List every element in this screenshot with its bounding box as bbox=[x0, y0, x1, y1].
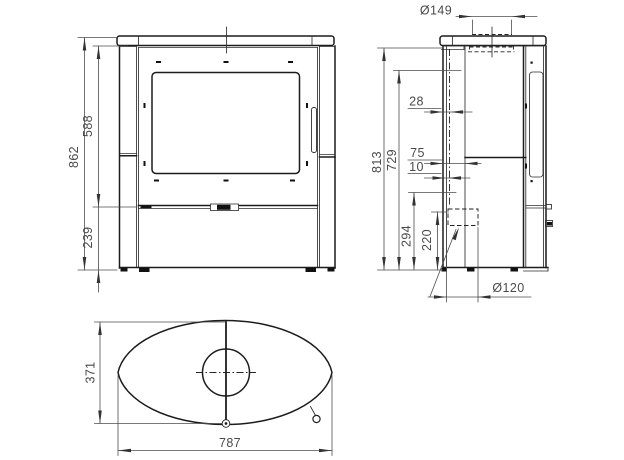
front-feet bbox=[121, 268, 335, 272]
drawing-canvas: 862 588 239 bbox=[0, 0, 624, 460]
side-view: Ø149 813 729 bbox=[370, 4, 553, 303]
dim-height-base: 239 bbox=[81, 207, 100, 292]
dim-height-upper: 588 bbox=[81, 46, 137, 207]
dim-label-729: 729 bbox=[385, 149, 399, 171]
dim-label-flue-rear: Ø120 bbox=[492, 281, 524, 295]
stove-dimension-drawing: 862 588 239 bbox=[0, 0, 624, 460]
dim-offset-28: 28 bbox=[408, 95, 472, 114]
front-registration-marks bbox=[144, 61, 309, 182]
top-view: 371 787 bbox=[84, 321, 333, 456]
dim-label-28: 28 bbox=[409, 95, 424, 109]
top-flue-collar-hidden bbox=[468, 27, 515, 57]
front-door-handle bbox=[312, 108, 317, 153]
dim-width: 787 bbox=[118, 376, 332, 456]
dim-label-75: 75 bbox=[410, 146, 425, 160]
dim-label-10: 10 bbox=[409, 160, 424, 174]
side-view-outline bbox=[440, 36, 553, 271]
dim-label-813: 813 bbox=[370, 151, 384, 173]
rear-flue-outlet-hidden bbox=[448, 209, 478, 226]
dim-label-294: 294 bbox=[400, 225, 414, 247]
side-feet bbox=[442, 268, 519, 272]
dim-label-220: 220 bbox=[420, 229, 434, 251]
front-view: 862 588 239 bbox=[67, 27, 335, 292]
dim-flue-top-diameter: Ø149 bbox=[420, 4, 537, 35]
dim-label-787: 787 bbox=[219, 436, 241, 450]
dim-label-862: 862 bbox=[67, 146, 81, 168]
dim-label-371: 371 bbox=[84, 361, 98, 383]
dim-label-239: 239 bbox=[81, 226, 95, 248]
dim-height-220: 220 bbox=[420, 212, 449, 270]
dim-label-flue-top: Ø149 bbox=[420, 4, 452, 18]
top-view-latch bbox=[222, 420, 230, 428]
front-glass-window bbox=[152, 73, 300, 174]
top-view-handle-knob bbox=[311, 407, 321, 423]
dim-label-588: 588 bbox=[81, 115, 95, 137]
front-view-outline bbox=[117, 27, 335, 268]
dim-depth: 371 bbox=[84, 322, 227, 424]
